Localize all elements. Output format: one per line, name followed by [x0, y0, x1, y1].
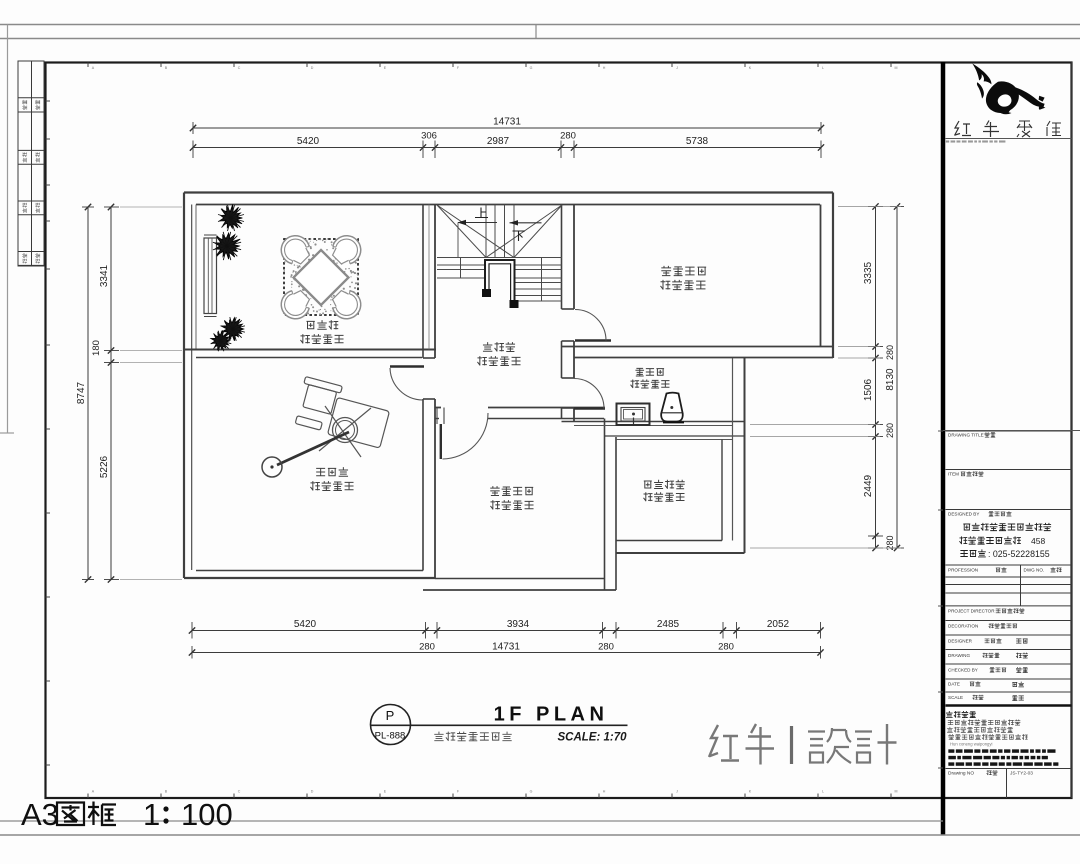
svg-text:Hun coneng waipongyi: Hun coneng waipongyi	[950, 742, 992, 747]
svg-text:H: H	[603, 790, 606, 794]
svg-text:306: 306	[421, 131, 437, 142]
svg-text:180: 180	[91, 340, 102, 356]
svg-text:A: A	[92, 790, 95, 794]
svg-text:2485: 2485	[657, 619, 680, 630]
svg-text:14731: 14731	[493, 117, 521, 128]
svg-text:2449: 2449	[863, 474, 874, 497]
svg-text:C: C	[238, 790, 241, 794]
svg-text:3341: 3341	[99, 264, 110, 287]
svg-text:280: 280	[885, 423, 895, 438]
svg-text:DECORATION: DECORATION	[948, 624, 978, 629]
svg-text:B: B	[165, 66, 168, 70]
svg-text:K: K	[749, 790, 752, 794]
svg-text:DESIGNER: DESIGNER	[948, 639, 973, 644]
svg-text:280: 280	[419, 642, 435, 653]
svg-text:F: F	[457, 66, 460, 70]
svg-text:SCALE: SCALE	[948, 695, 963, 700]
svg-text:8747: 8747	[76, 381, 87, 404]
svg-text:14731: 14731	[492, 642, 520, 653]
svg-text:: 025-52228155: : 025-52228155	[988, 549, 1050, 559]
svg-text:SCALE: 1:70: SCALE: 1:70	[557, 732, 627, 744]
svg-text:DATE: DATE	[948, 682, 960, 687]
svg-text:H: H	[603, 66, 606, 70]
svg-text:M: M	[895, 790, 898, 794]
svg-text:DESIGNED BY: DESIGNED BY	[948, 512, 979, 517]
svg-text:L: L	[822, 790, 824, 794]
svg-text:5226: 5226	[99, 455, 110, 478]
svg-text:280: 280	[885, 345, 895, 360]
svg-text:DRAWING: DRAWING	[948, 653, 970, 658]
svg-text:L: L	[822, 66, 824, 70]
svg-text:C: C	[238, 66, 241, 70]
svg-text:JS-TY2-03: JS-TY2-03	[1010, 771, 1033, 777]
svg-text:5738: 5738	[686, 136, 709, 147]
svg-text:DWG NO.: DWG NO.	[1024, 568, 1045, 573]
svg-text:280: 280	[598, 642, 614, 653]
svg-text:D: D	[311, 66, 314, 70]
svg-text:CHECKED BY: CHECKED BY	[948, 668, 978, 673]
svg-text:1: 1	[143, 797, 160, 832]
svg-text:K: K	[749, 66, 752, 70]
svg-text:J: J	[676, 790, 678, 794]
svg-text:E: E	[384, 790, 387, 794]
svg-text:3934: 3934	[507, 619, 530, 630]
svg-text:5420: 5420	[297, 136, 320, 147]
svg-text:458: 458	[1031, 536, 1045, 546]
svg-text:M: M	[895, 66, 898, 70]
svg-text:2987: 2987	[487, 136, 510, 147]
svg-text:1506: 1506	[863, 378, 874, 401]
svg-text:8130: 8130	[885, 368, 896, 391]
svg-text:280: 280	[718, 642, 734, 653]
svg-text:2052: 2052	[767, 619, 790, 630]
svg-text:A: A	[92, 66, 95, 70]
svg-text:G: G	[530, 790, 533, 794]
svg-text:J: J	[676, 66, 678, 70]
svg-text:Drawing NO: Drawing NO	[948, 771, 974, 777]
svg-text:P: P	[386, 708, 395, 723]
svg-text:100: 100	[181, 797, 233, 832]
svg-text:G: G	[530, 66, 533, 70]
svg-text:B: B	[165, 790, 168, 794]
svg-text:PROFESSION: PROFESSION	[948, 568, 978, 573]
svg-text:PL-888: PL-888	[375, 731, 406, 742]
svg-text:A3: A3	[21, 797, 59, 832]
svg-text:F: F	[457, 790, 460, 794]
svg-text:ITEM: ITEM	[948, 472, 959, 477]
svg-text:3335: 3335	[863, 261, 874, 284]
svg-text:1F PLAN: 1F PLAN	[494, 704, 609, 726]
svg-text:D: D	[311, 790, 314, 794]
svg-text:5420: 5420	[294, 619, 317, 630]
svg-text:280: 280	[560, 131, 576, 142]
svg-text:E: E	[384, 66, 387, 70]
svg-text:PROJECT DIRECTOR: PROJECT DIRECTOR	[948, 609, 995, 614]
svg-text:DRAWING TITLE: DRAWING TITLE	[948, 433, 984, 438]
